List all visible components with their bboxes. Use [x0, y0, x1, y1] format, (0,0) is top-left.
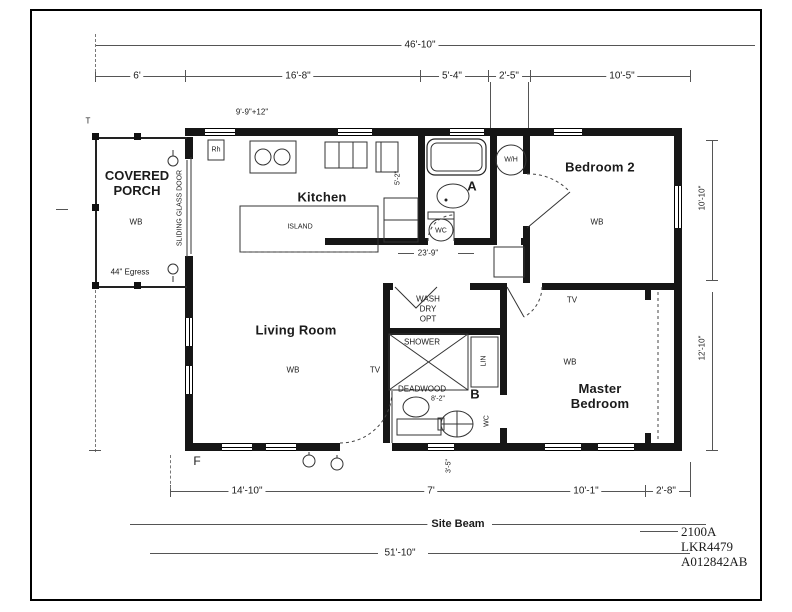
dim-right-upper: 10'-10" [698, 184, 707, 213]
label-wash: WASH [416, 295, 440, 304]
dim-extension-line [690, 462, 691, 490]
dim-bottom-overall: 51'-10" [381, 548, 418, 559]
dim-extension-dashed-left [95, 290, 96, 452]
dim-tick [706, 450, 718, 451]
label-sliding-glass-door: SLIDING GLASS DOOR [177, 170, 184, 246]
dim-tick [420, 70, 421, 82]
marker-tv-master: TV [567, 296, 577, 305]
dim-line-bottom-overall-left [150, 553, 378, 554]
label-dry: DRY [420, 305, 437, 314]
dim-extension-line [490, 82, 491, 128]
floor-plan-sheet: 46'-10" 6' 16'-8" 5'-4" 2'-5" 10'-5" 9'-… [0, 0, 792, 612]
dim-extension-dashed [170, 455, 171, 489]
room-label-master-bedroom: Master Bedroom [552, 382, 648, 412]
room-label-bath-a: A [467, 179, 477, 194]
label-water-heater: W/H [504, 157, 518, 164]
site-beam-line-right [492, 524, 706, 525]
marker-wb-master: WB [564, 358, 577, 367]
dim-tick [89, 450, 101, 451]
room-label-bedroom-2: Bedroom 2 [565, 160, 635, 175]
dim-tick [530, 70, 531, 82]
label-wc-bath-b: WC [484, 415, 491, 427]
cooktop-icon [250, 141, 296, 173]
pantry-cabinet [384, 198, 418, 242]
label-island: ISLAND [287, 224, 312, 231]
label-opt: OPT [420, 315, 436, 324]
entry-door-arc [340, 391, 392, 443]
dim-line-hall [458, 253, 474, 254]
dim-tick [690, 70, 691, 82]
dim-top-seg-1: 6' [130, 71, 143, 82]
room-label-bath-b: B [470, 387, 480, 402]
dim-tick [56, 209, 68, 210]
label-shower: SHOWER [404, 338, 440, 347]
switch-icon [168, 264, 178, 282]
bath-b-toilet-icon [438, 411, 473, 437]
site-beam-line-left [130, 524, 428, 525]
dim-door-offset: 3'-5" [446, 459, 453, 473]
label-linen: LIN [481, 356, 488, 367]
marker-wb-porch: WB [130, 218, 143, 227]
dim-tick [706, 280, 718, 281]
dim-tick [645, 485, 646, 497]
dim-bath-b: 8'-2" [431, 396, 445, 403]
refrigerator-icon [376, 142, 398, 172]
tag-t: T [86, 117, 91, 126]
switch-icon [168, 150, 178, 166]
master-door-arc [507, 287, 542, 317]
room-label-living-room: Living Room [256, 323, 337, 338]
dim-bottom-seg-3: 10'-1" [570, 486, 601, 497]
dim-top-overall: 46'-10" [401, 40, 438, 51]
dim-tick [706, 140, 718, 141]
dim-top-seg-5: 10'-5" [606, 71, 637, 82]
sliding-door-icon [187, 157, 191, 257]
dim-line-right-lower [712, 292, 713, 450]
dim-extension-line [528, 82, 529, 128]
title-leader-line [640, 531, 678, 532]
label-wc-bath-a: WC [435, 228, 447, 235]
dim-top-seg-4: 2'-5" [496, 71, 522, 82]
room-label-kitchen: Kitchen [297, 190, 346, 205]
marker-tv-living: TV [370, 366, 380, 375]
bedroom2-closet-shelf [494, 247, 524, 277]
dim-top-seg-3: 5'-4" [439, 71, 465, 82]
dim-line-right-upper [712, 140, 713, 280]
marker-wb-living: WB [287, 366, 300, 375]
bedroom2-door-arc [527, 174, 570, 228]
dim-extension-dashed [95, 34, 96, 72]
dim-bottom-seg-4: 2'-8" [653, 486, 679, 497]
tag-f: F [193, 454, 200, 468]
room-label-covered-porch: COVERED PORCH [95, 169, 179, 199]
marker-wb-bedroom2: WB [591, 218, 604, 227]
dim-bottom-seg-2: 7' [424, 486, 437, 497]
label-range-hood: Rh [212, 147, 221, 154]
kitchen-sink-icon [325, 142, 367, 168]
marker-egress: 44" Egress [111, 268, 150, 277]
dim-pantry: 5'-2" [395, 171, 402, 185]
dim-bottom-seg-1: 14'-10" [228, 486, 265, 497]
bath-a-toilet-icon [428, 212, 454, 241]
title-serial-number: LKR4479 [681, 539, 733, 555]
bath-a-sink-icon [437, 184, 469, 208]
dim-tick [185, 70, 186, 82]
label-deadwood: DEADWOOD [398, 385, 446, 394]
porch-light-icon [331, 455, 343, 470]
title-drawing-number: A012842AB [681, 554, 747, 570]
title-model-number: 2100A [681, 524, 716, 540]
dim-top-seg-2: 16'-8" [282, 71, 313, 82]
dim-tick [488, 70, 489, 82]
bathtub-icon [427, 139, 486, 175]
label-site-beam: Site Beam [427, 518, 488, 530]
dim-right-lower: 12'-10" [698, 334, 707, 363]
dim-line-hall [398, 253, 414, 254]
porch-light-icon [303, 452, 315, 467]
dim-kitchen-wall: 9'-9"+12" [234, 108, 270, 117]
bath-b-sink-icon [397, 397, 441, 435]
dim-hall-width: 23'-9" [416, 249, 440, 258]
dim-line-bottom-overall-right [428, 553, 690, 554]
fixtures-overlay [0, 0, 792, 612]
